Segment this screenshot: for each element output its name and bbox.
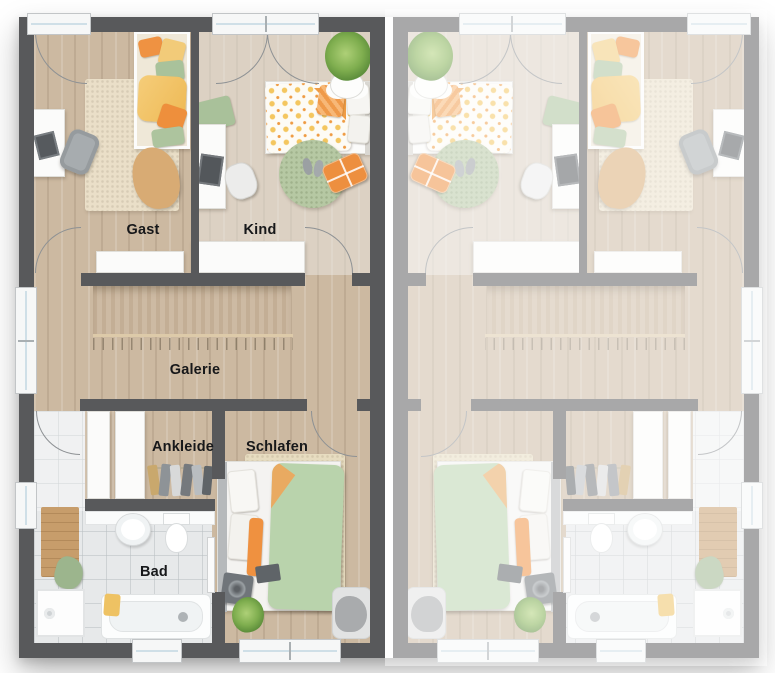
bad-bathtub-basin bbox=[109, 601, 203, 632]
wall-rooms-galerie bbox=[81, 273, 305, 286]
room-label-kind: Kind bbox=[243, 222, 276, 238]
kind-cushion-ribbon-h bbox=[327, 165, 364, 183]
schlafen-clothes-pile bbox=[335, 596, 367, 632]
schlafen-daybed bbox=[332, 587, 372, 639]
schlafen-speaker-cone bbox=[227, 579, 247, 599]
ankleide-wardrobe-1 bbox=[87, 411, 110, 499]
schlafen-tablet bbox=[255, 563, 281, 583]
wall-galerie-south-stub bbox=[357, 399, 371, 411]
bad-sink bbox=[115, 513, 151, 546]
gast-bed bbox=[134, 31, 190, 149]
window-bad-side bbox=[15, 482, 37, 529]
ankleide-wardrobe-2 bbox=[115, 411, 145, 499]
neighbor-unit-fade-overlay bbox=[385, 9, 767, 666]
floor-plan: Gast Kind Galerie Ankleide Schlafen Bad bbox=[19, 17, 759, 658]
galerie-sideboard-gast bbox=[96, 251, 184, 273]
gast-pillow-green-2 bbox=[151, 126, 185, 148]
room-label-ankleide: Ankleide bbox=[152, 439, 214, 455]
room-label-gast: Gast bbox=[126, 222, 159, 238]
bad-shower-tray bbox=[36, 589, 85, 637]
bad-shower-drain bbox=[44, 608, 55, 619]
window-kind bbox=[212, 13, 319, 35]
galerie-sideboard-kind bbox=[191, 241, 305, 273]
window-bad-bottom bbox=[132, 639, 182, 663]
wall-schlafen-west-b bbox=[212, 592, 225, 643]
kind-pillow-white-2 bbox=[347, 114, 372, 144]
kind-laptop bbox=[197, 154, 224, 187]
room-label-bad: Bad bbox=[140, 564, 168, 580]
schlafen-blanket-orange bbox=[267, 463, 295, 580]
floor-plan-canvas: Gast Kind Galerie Ankleide Schlafen Bad bbox=[0, 0, 775, 673]
wall-ankleide-bad bbox=[85, 499, 215, 511]
unit-right-mirrored bbox=[393, 17, 759, 658]
bad-vanity bbox=[85, 511, 215, 525]
wall-galerie-south bbox=[80, 399, 307, 411]
schlafen-pillow-1 bbox=[227, 469, 259, 514]
room-label-schlafen: Schlafen bbox=[246, 439, 308, 455]
window-galerie bbox=[15, 287, 37, 394]
unit-left: Gast Kind Galerie Ankleide Schlafen Bad bbox=[19, 17, 385, 658]
bad-door-leaf bbox=[207, 537, 215, 593]
window-schlafen bbox=[239, 639, 341, 663]
window-gast bbox=[27, 13, 91, 35]
room-label-galerie: Galerie bbox=[170, 362, 221, 378]
wall-rooms-galerie-stub bbox=[352, 273, 371, 286]
bad-towel-yellow bbox=[103, 593, 120, 616]
wall-gast-kind-divider bbox=[191, 32, 199, 275]
bad-bathtub-faucet bbox=[178, 612, 188, 622]
bad-toilet-bowl bbox=[165, 523, 188, 553]
stair-railing bbox=[93, 334, 293, 337]
stairwell bbox=[93, 286, 291, 337]
stair-hatch-marks bbox=[93, 338, 293, 350]
schlafen-plant bbox=[232, 597, 264, 633]
wall-party bbox=[370, 17, 385, 658]
kind-plant bbox=[325, 31, 371, 81]
